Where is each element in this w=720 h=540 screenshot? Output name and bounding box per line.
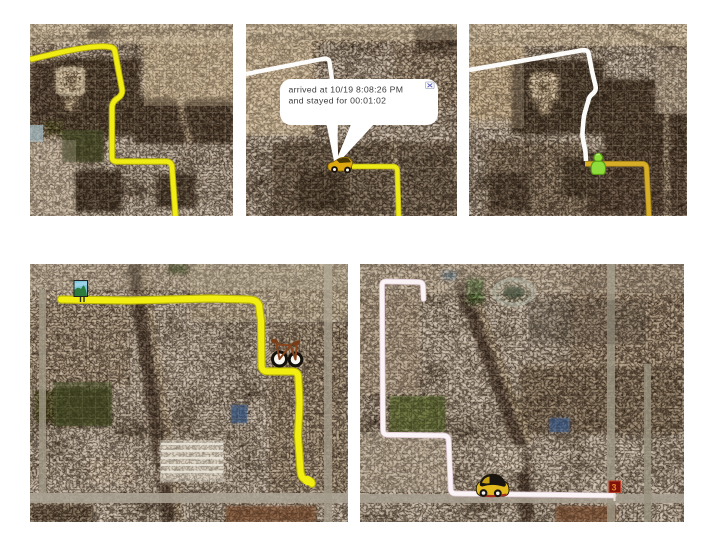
svg-text:3: 3 bbox=[612, 483, 617, 493]
svg-text:arrived at 10/19 8:08:26 PM: arrived at 10/19 8:08:26 PM bbox=[289, 85, 404, 95]
svg-text:and stayed for 00:01:02: and stayed for 00:01:02 bbox=[289, 96, 387, 106]
